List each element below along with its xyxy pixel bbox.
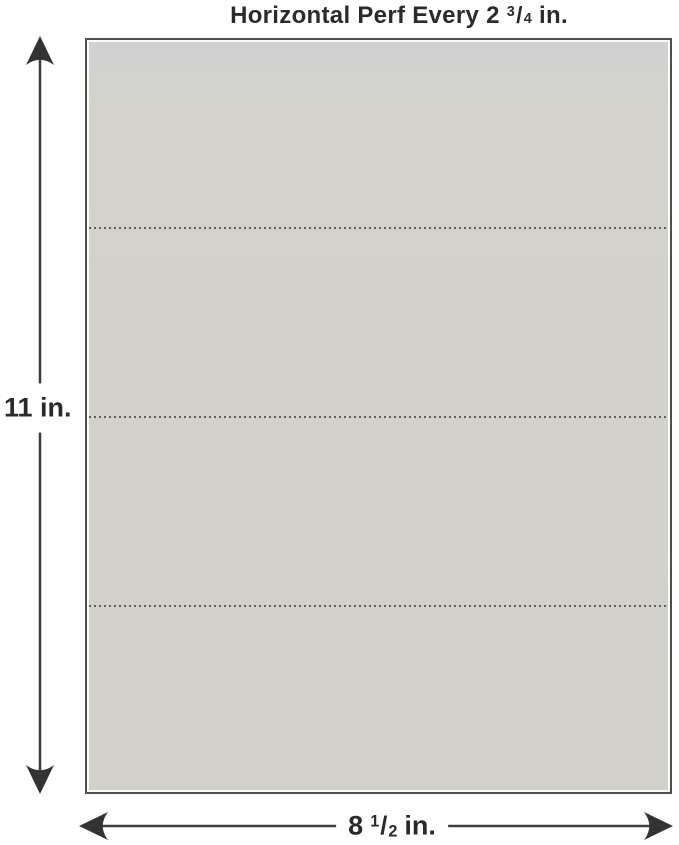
width-label-prefix: 8: [348, 811, 363, 841]
width-fraction-slash: /: [380, 813, 387, 841]
width-fraction-denominator: 2: [388, 822, 397, 840]
title-fraction-numerator: 3: [507, 4, 515, 20]
perforation-line-2: [89, 416, 668, 418]
title-suffix: in.: [539, 2, 568, 29]
perforated-paper-diagram: Horizontal Perf Every 23/4in. 11 in. 81/…: [0, 0, 679, 845]
width-fraction-numerator: 1: [370, 812, 379, 830]
width-dimension-label: 81/2in.: [336, 809, 448, 844]
title-fraction-slash: /: [516, 2, 523, 28]
title-prefix: Horizontal Perf Every 2: [230, 2, 500, 29]
diagram-title: Horizontal Perf Every 23/4in.: [230, 2, 568, 30]
paper-sheet: [85, 38, 672, 794]
perforation-line-3: [89, 605, 668, 607]
height-dimension-label: 11 in.: [1, 384, 75, 433]
perforation-line-1: [89, 227, 668, 229]
title-fraction-denominator: 4: [524, 11, 532, 27]
width-label-suffix: in.: [404, 811, 436, 841]
